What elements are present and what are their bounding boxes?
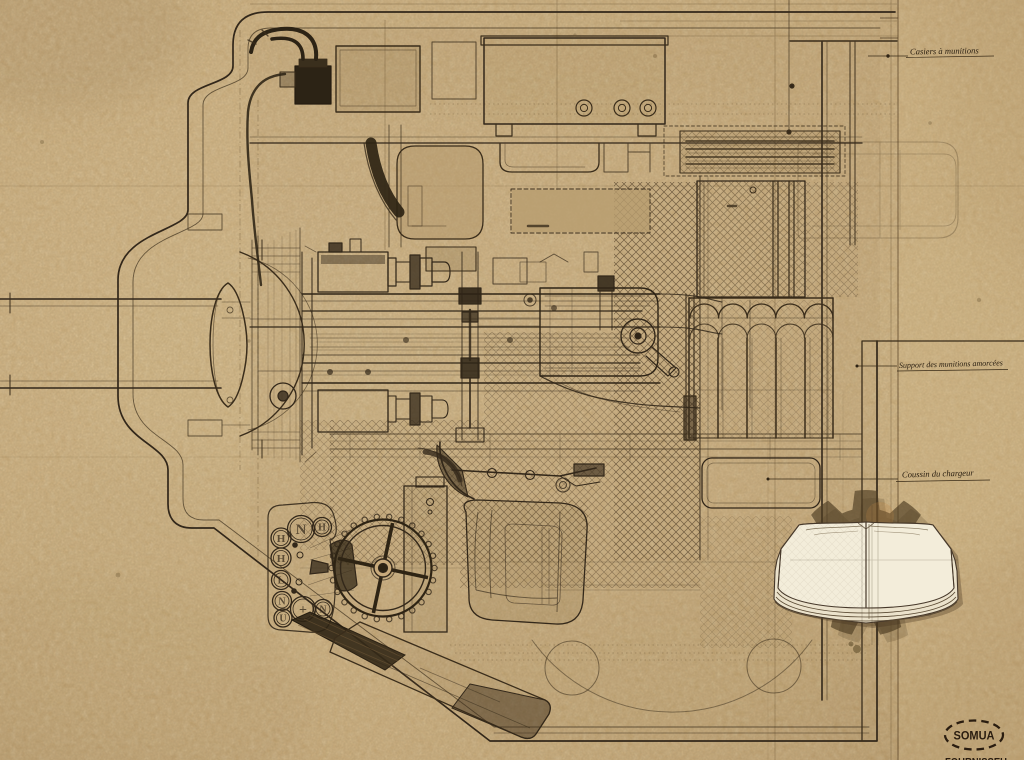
svg-text:N: N [296, 522, 307, 538]
svg-text:Casiers à munitions: Casiers à munitions [910, 45, 980, 56]
svg-text:L: L [278, 576, 285, 587]
svg-text:H: H [277, 553, 286, 565]
svg-text:H: H [277, 533, 286, 545]
svg-text:N: N [278, 597, 286, 608]
svg-text:Coussin du chargeur: Coussin du chargeur [902, 468, 975, 480]
svg-text:SOMUA: SOMUA [954, 729, 995, 743]
svg-text:H: H [318, 523, 326, 534]
svg-text:N: N [319, 605, 327, 616]
svg-text:FOURNISSEU: FOURNISSEU [945, 757, 1007, 760]
svg-text:U: U [279, 613, 286, 624]
